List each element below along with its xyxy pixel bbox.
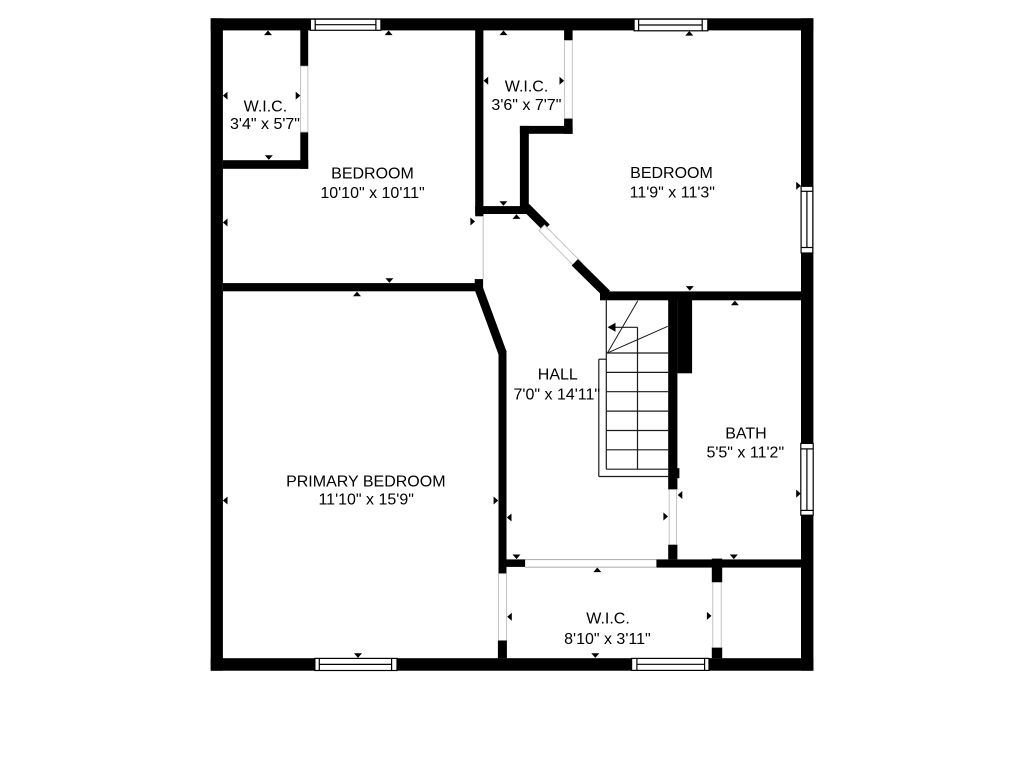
svg-text:11'9" x 11'3": 11'9" x 11'3" [630, 185, 715, 202]
svg-text:11'10" x 15'9": 11'10" x 15'9" [318, 491, 413, 508]
svg-text:BATH: BATH [725, 425, 766, 442]
svg-text:BEDROOM: BEDROOM [331, 165, 414, 182]
svg-text:8'10" x 3'11": 8'10" x 3'11" [564, 631, 651, 648]
svg-text:PRIMARY BEDROOM: PRIMARY BEDROOM [286, 473, 445, 490]
svg-text:W.I.C.: W.I.C. [244, 99, 288, 116]
svg-text:HALL: HALL [538, 367, 578, 384]
svg-text:7'0" x 14'11": 7'0" x 14'11" [514, 387, 601, 404]
svg-text:3'6" x 7'7": 3'6" x 7'7" [491, 97, 561, 114]
svg-text:5'5" x 11'2": 5'5" x 11'2" [706, 445, 784, 462]
svg-text:BEDROOM: BEDROOM [630, 165, 713, 182]
svg-text:W.I.C.: W.I.C. [586, 610, 630, 627]
svg-text:W.I.C.: W.I.C. [505, 78, 549, 95]
svg-text:3'4" x 5'7": 3'4" x 5'7" [230, 116, 300, 133]
svg-text:10'10" x 10'11": 10'10" x 10'11" [320, 185, 424, 202]
